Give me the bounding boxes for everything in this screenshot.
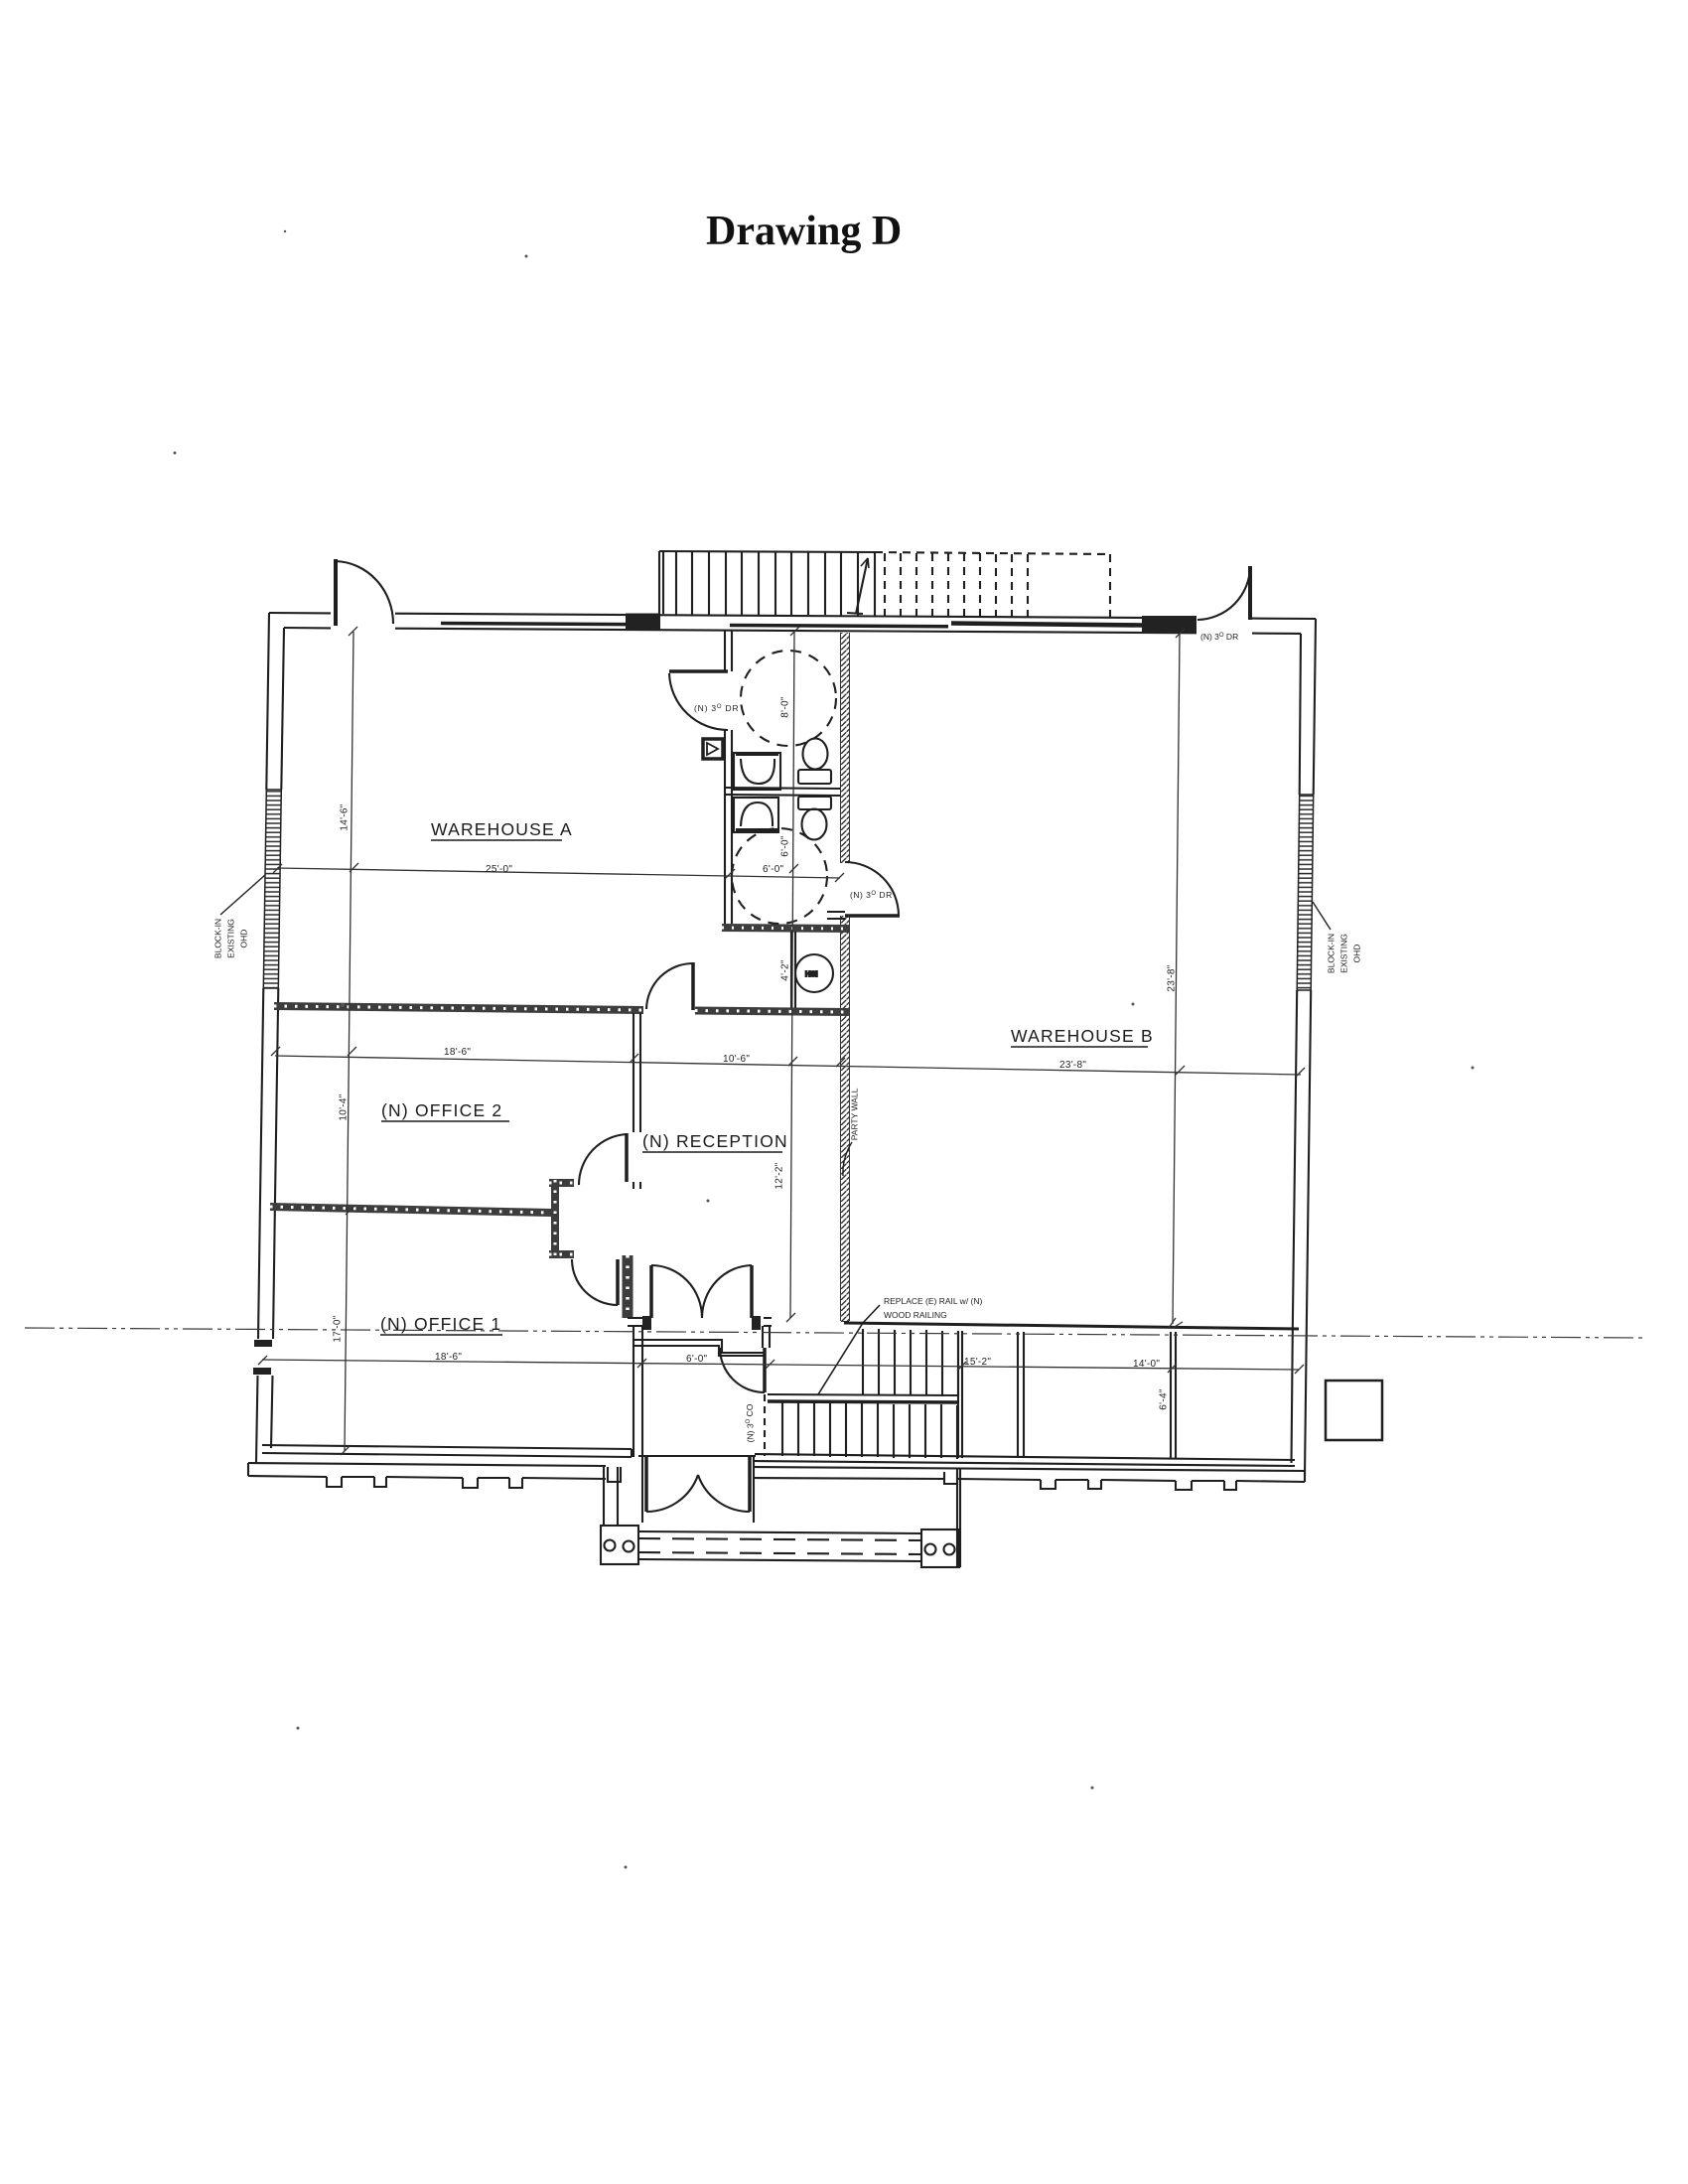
svg-text:6'-0": 6'-0" (763, 864, 784, 875)
svg-text:Drawing D: Drawing D (706, 209, 902, 254)
svg-text:12'-2": 12'-2" (774, 1162, 785, 1189)
svg-text:18'-6": 18'-6" (444, 1047, 471, 1058)
svg-text:PARTY WALL: PARTY WALL (849, 1088, 859, 1140)
svg-text:(N) OFFICE 2: (N) OFFICE 2 (381, 1100, 502, 1120)
svg-text:(N) 3O DR: (N) 3O DR (850, 890, 893, 900)
svg-text:(N) 3O DR: (N) 3O DR (694, 703, 739, 713)
svg-text:10'-6": 10'-6" (723, 1054, 750, 1065)
svg-text:23'-8": 23'-8" (1167, 964, 1178, 991)
svg-text:(N) RECEPTION: (N) RECEPTION (642, 1131, 788, 1151)
svg-text:6'-0": 6'-0" (780, 835, 791, 857)
svg-text:8'-0": 8'-0" (780, 696, 791, 718)
svg-text:OHD: OHD (1351, 945, 1361, 963)
svg-text:HSI: HSI (805, 969, 818, 978)
svg-text:15'-2": 15'-2" (964, 1357, 991, 1368)
svg-text:BLOCK-IN: BLOCK-IN (1326, 934, 1336, 973)
svg-text:25'-0": 25'-0" (486, 864, 512, 875)
svg-text:18'-6": 18'-6" (435, 1352, 462, 1363)
svg-text:WAREHOUSE A: WAREHOUSE A (431, 819, 573, 839)
svg-text:WOOD RAILING: WOOD RAILING (884, 1310, 947, 1320)
svg-text:(N) 3O CO: (N) 3O CO (745, 1403, 755, 1442)
svg-text:23'-8": 23'-8" (1059, 1060, 1086, 1071)
svg-text:4'-2": 4'-2" (780, 959, 791, 981)
svg-text:6'-4": 6'-4" (1159, 1388, 1170, 1410)
svg-text:REPLACE (E) RAIL w/ (N): REPLACE (E) RAIL w/ (N) (884, 1296, 983, 1306)
svg-text:OHD: OHD (238, 930, 248, 948)
svg-text:EXISTING: EXISTING (1338, 934, 1348, 973)
svg-text:14'-0": 14'-0" (1133, 1359, 1160, 1370)
svg-text:6'-0": 6'-0" (686, 1354, 708, 1365)
svg-text:17'-0": 17'-0" (333, 1315, 344, 1342)
svg-text:EXISTING: EXISTING (225, 919, 235, 958)
svg-text:14'-6": 14'-6" (340, 803, 351, 830)
svg-text:(N) 3O DR: (N) 3O DR (1200, 632, 1238, 642)
svg-text:BLOCK-IN: BLOCK-IN (212, 919, 222, 958)
svg-text:10'-4": 10'-4" (339, 1093, 350, 1120)
svg-text:WAREHOUSE B: WAREHOUSE B (1011, 1026, 1154, 1046)
svg-text:(N) OFFICE 1: (N) OFFICE 1 (380, 1314, 501, 1334)
